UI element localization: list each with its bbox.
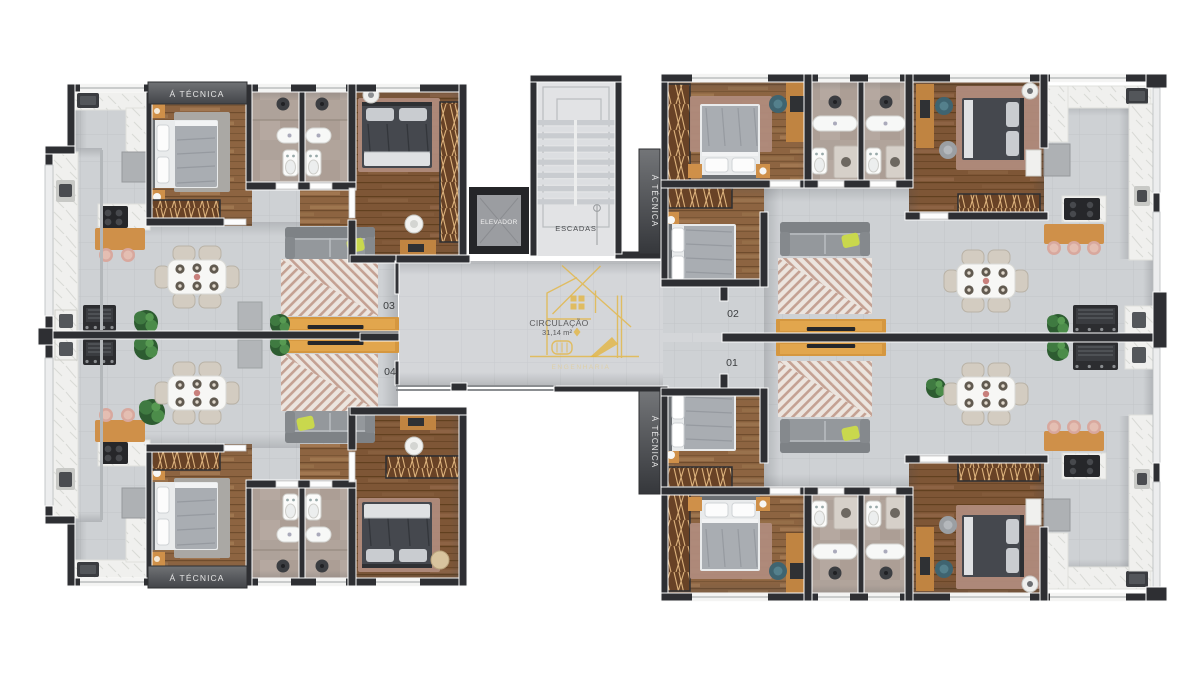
svg-text:CIRCULAÇÃO: CIRCULAÇÃO bbox=[529, 318, 588, 328]
svg-text:31,14 m²: 31,14 m² bbox=[542, 328, 572, 337]
svg-text:03: 03 bbox=[383, 300, 395, 312]
svg-text:Á TÉCNICA: Á TÉCNICA bbox=[650, 416, 659, 468]
svg-text:Á TÉCNICA: Á TÉCNICA bbox=[169, 573, 224, 583]
svg-text:Á TÉCNICA: Á TÉCNICA bbox=[169, 89, 224, 99]
svg-text:04: 04 bbox=[384, 366, 396, 378]
svg-text:ESCADAS: ESCADAS bbox=[555, 224, 596, 233]
svg-text:ENGENHARIA: ENGENHARIA bbox=[552, 364, 611, 371]
svg-text:02: 02 bbox=[727, 308, 739, 320]
svg-text:Á TÉCNICA: Á TÉCNICA bbox=[650, 175, 659, 227]
svg-text:01: 01 bbox=[726, 357, 738, 369]
svg-text:ELEVADOR: ELEVADOR bbox=[480, 219, 517, 226]
